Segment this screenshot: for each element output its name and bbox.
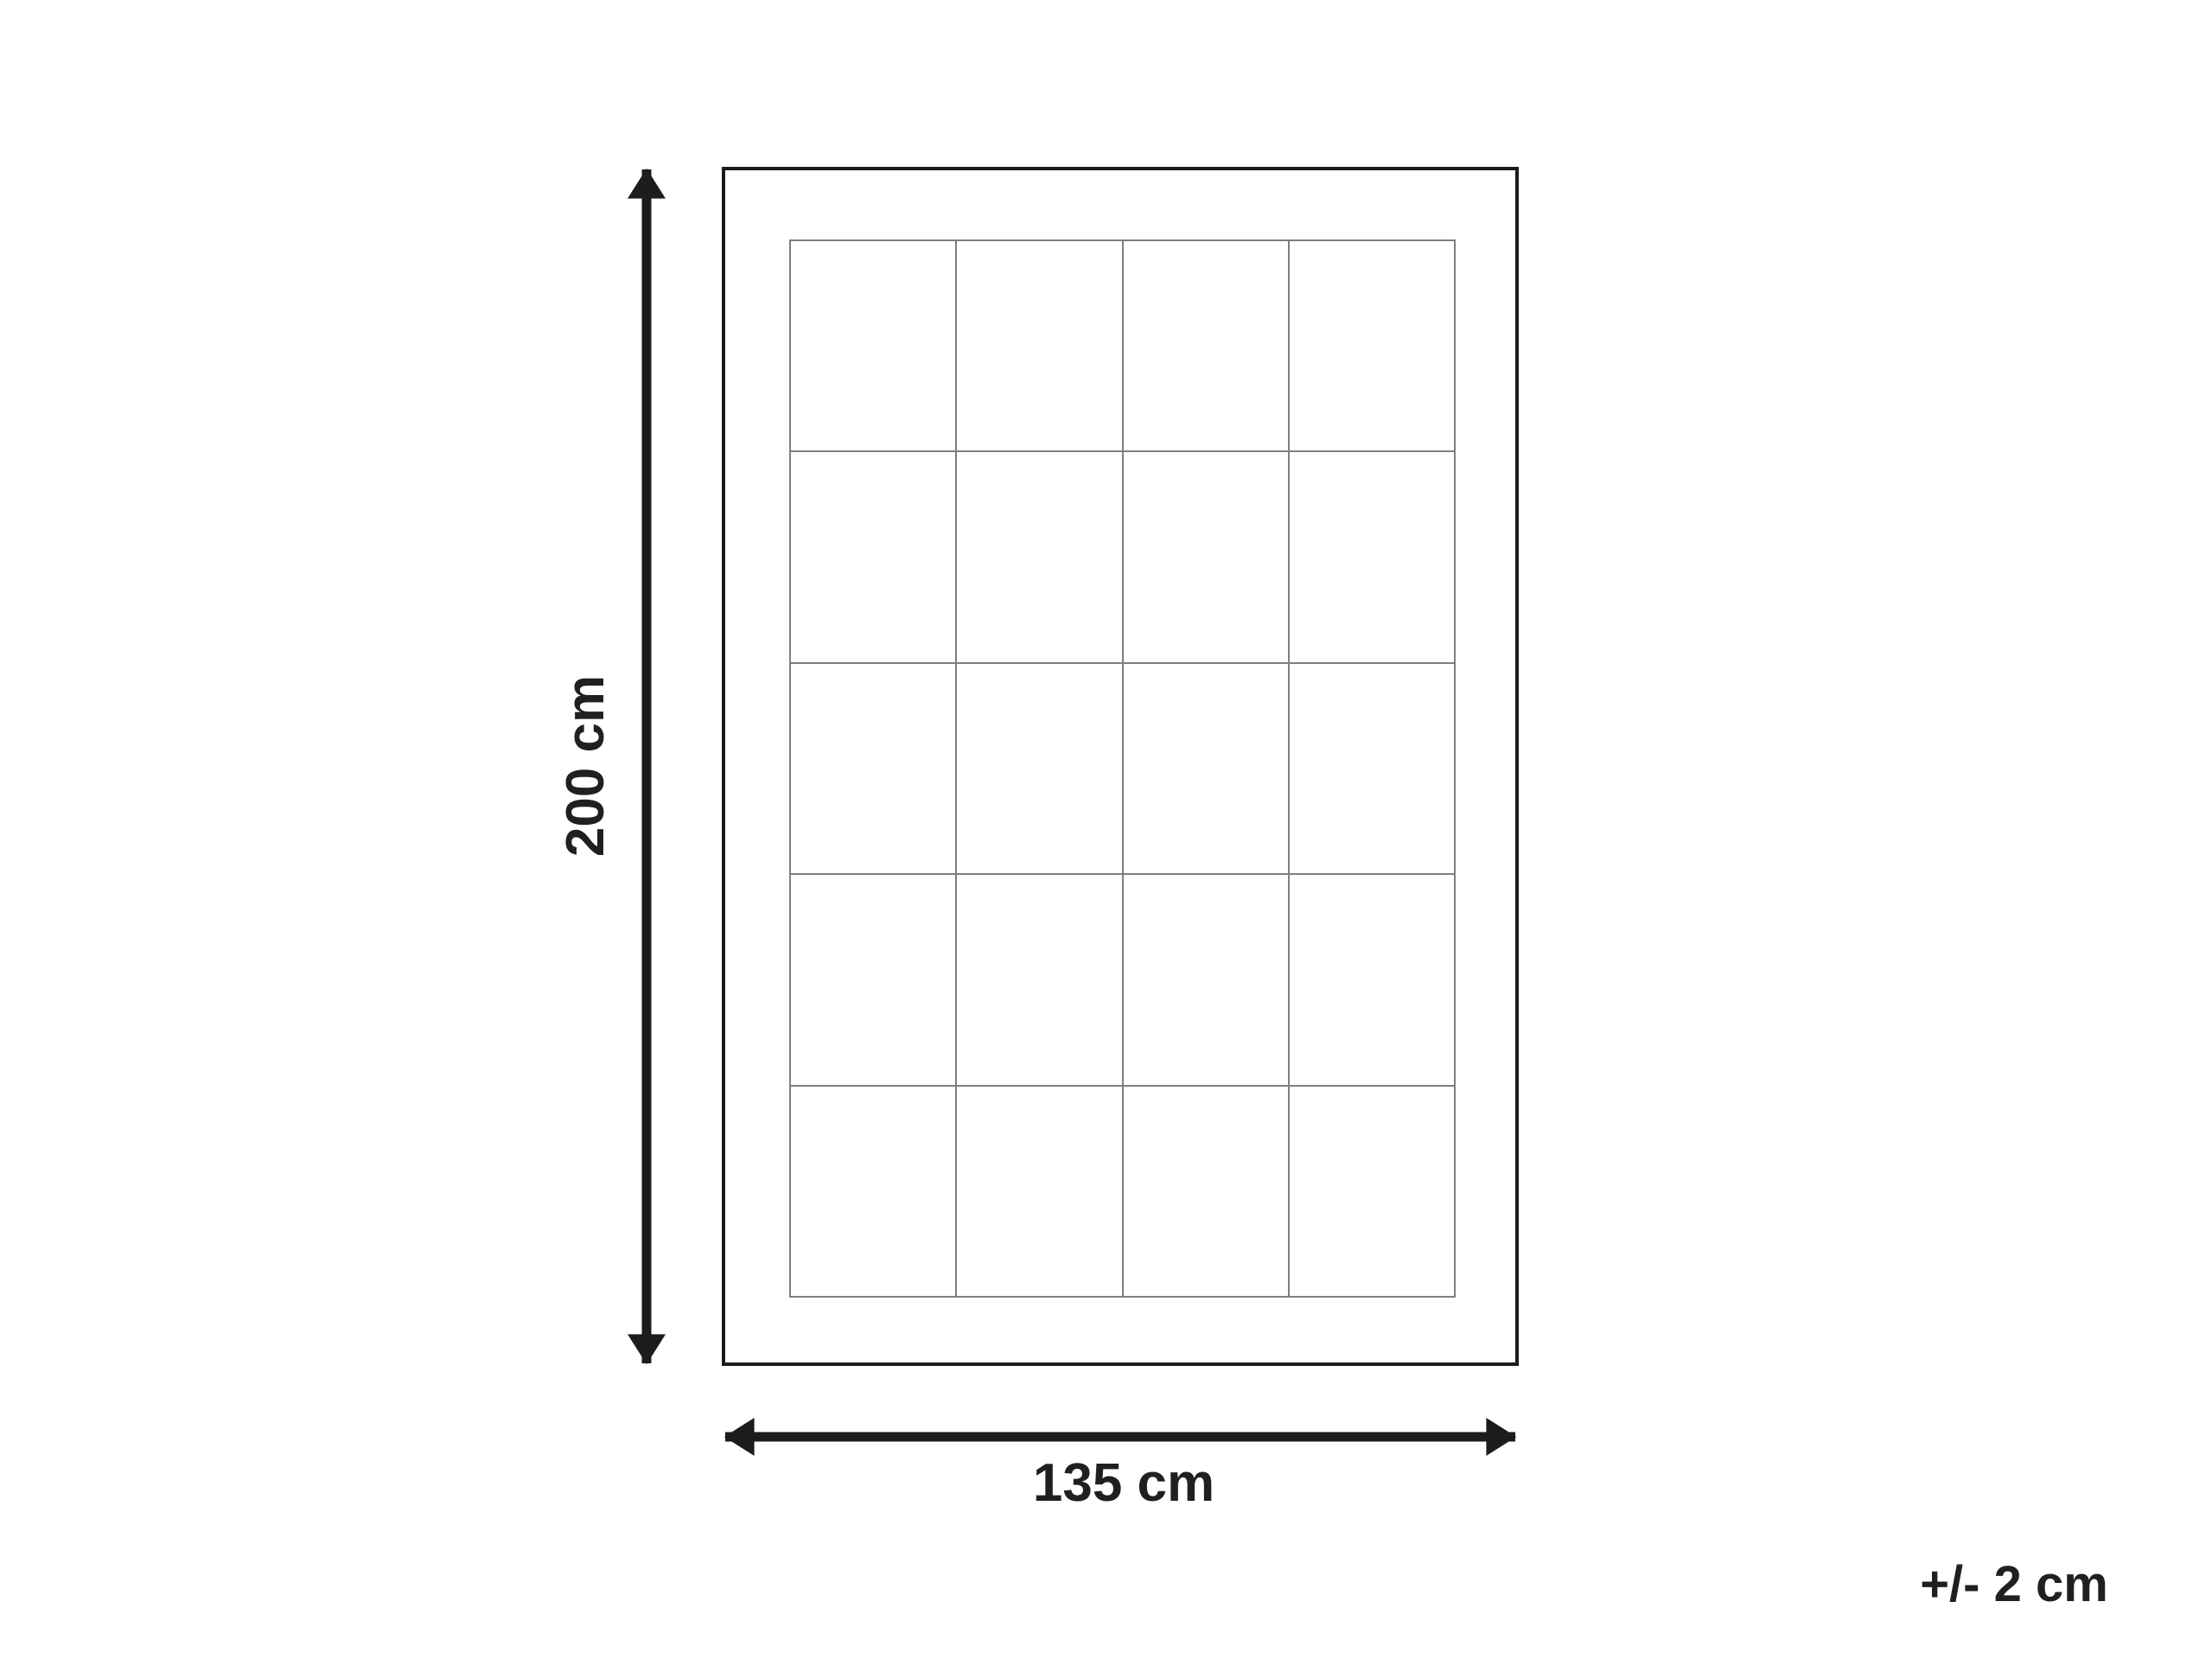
height-dimension-label: 200 cm <box>559 675 613 857</box>
dimension-diagram: 200 cm 135 cm +/- 2 cm <box>0 0 2212 1659</box>
dimension-arrows-layer <box>0 0 2212 1659</box>
width-dimension-label: 135 cm <box>1033 1457 1214 1510</box>
tolerance-label: +/- 2 cm <box>1920 1560 2108 1610</box>
